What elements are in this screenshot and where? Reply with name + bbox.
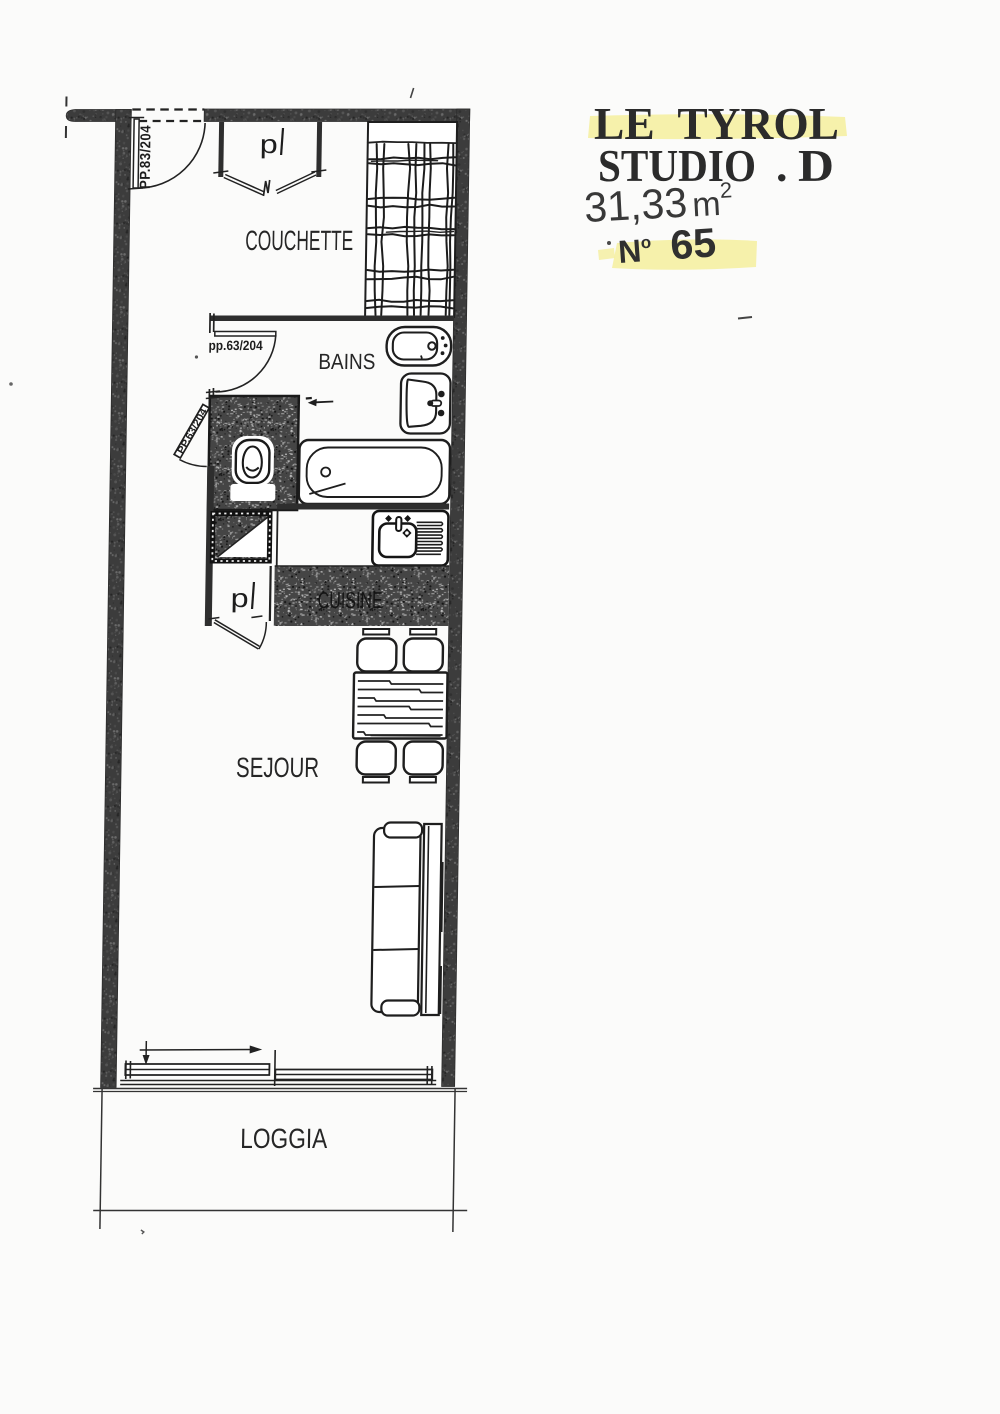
svg-text:PP.63/204: PP.63/204 — [176, 406, 211, 455]
svg-text:COUCHETTE: COUCHETTE — [245, 225, 353, 256]
svg-text:p: p — [260, 129, 278, 159]
svg-text:pp.63/204: pp.63/204 — [209, 338, 264, 353]
svg-text:PP.83/204: PP.83/204 — [138, 125, 155, 189]
svg-text:BAINS: BAINS — [318, 349, 375, 374]
svg-text:LOGGIA: LOGGIA — [240, 1123, 328, 1154]
svg-text:WC: WC — [240, 416, 264, 433]
svg-text:CUISINE: CUISINE — [317, 587, 382, 613]
svg-text:SEJOUR: SEJOUR — [236, 752, 319, 783]
svg-text:p: p — [230, 583, 248, 613]
